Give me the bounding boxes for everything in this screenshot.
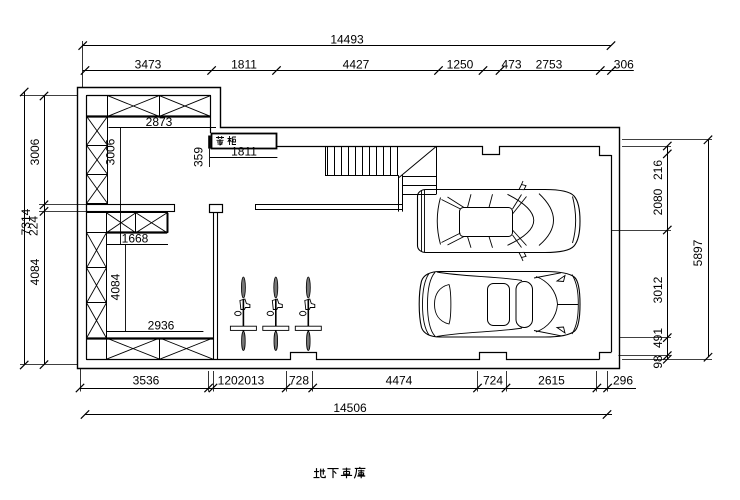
- svg-text:359: 359: [192, 147, 206, 167]
- svg-text:296: 296: [613, 373, 633, 387]
- svg-text:724: 724: [483, 373, 503, 387]
- svg-text:2873: 2873: [146, 115, 173, 129]
- svg-text:3012: 3012: [651, 276, 665, 303]
- svg-text:473: 473: [501, 57, 521, 71]
- svg-text:4084: 4084: [28, 258, 42, 285]
- svg-text:224: 224: [27, 216, 41, 236]
- svg-text:3473: 3473: [135, 57, 162, 71]
- svg-text:2753: 2753: [536, 57, 563, 71]
- svg-text:3006: 3006: [104, 138, 118, 165]
- svg-text:14493: 14493: [330, 33, 364, 47]
- svg-text:3006: 3006: [28, 138, 42, 165]
- svg-text:728: 728: [289, 373, 309, 387]
- svg-text:2080: 2080: [651, 188, 665, 215]
- svg-text:1811: 1811: [231, 57, 257, 71]
- svg-text:1202013: 1202013: [218, 373, 265, 387]
- svg-text:216: 216: [651, 160, 665, 180]
- svg-text:2615: 2615: [538, 373, 565, 387]
- svg-text:1811: 1811: [231, 145, 257, 159]
- svg-text:4474: 4474: [386, 373, 413, 387]
- svg-text:98: 98: [651, 355, 665, 369]
- svg-text:306: 306: [614, 57, 634, 71]
- svg-text:14506: 14506: [333, 401, 367, 415]
- svg-text:4427: 4427: [343, 57, 370, 71]
- svg-text:4084: 4084: [109, 273, 123, 300]
- svg-text:3536: 3536: [133, 373, 160, 387]
- svg-text:1668: 1668: [122, 232, 149, 246]
- svg-text:5897: 5897: [691, 239, 705, 266]
- svg-text:2936: 2936: [148, 319, 175, 333]
- svg-text:1250: 1250: [447, 57, 474, 71]
